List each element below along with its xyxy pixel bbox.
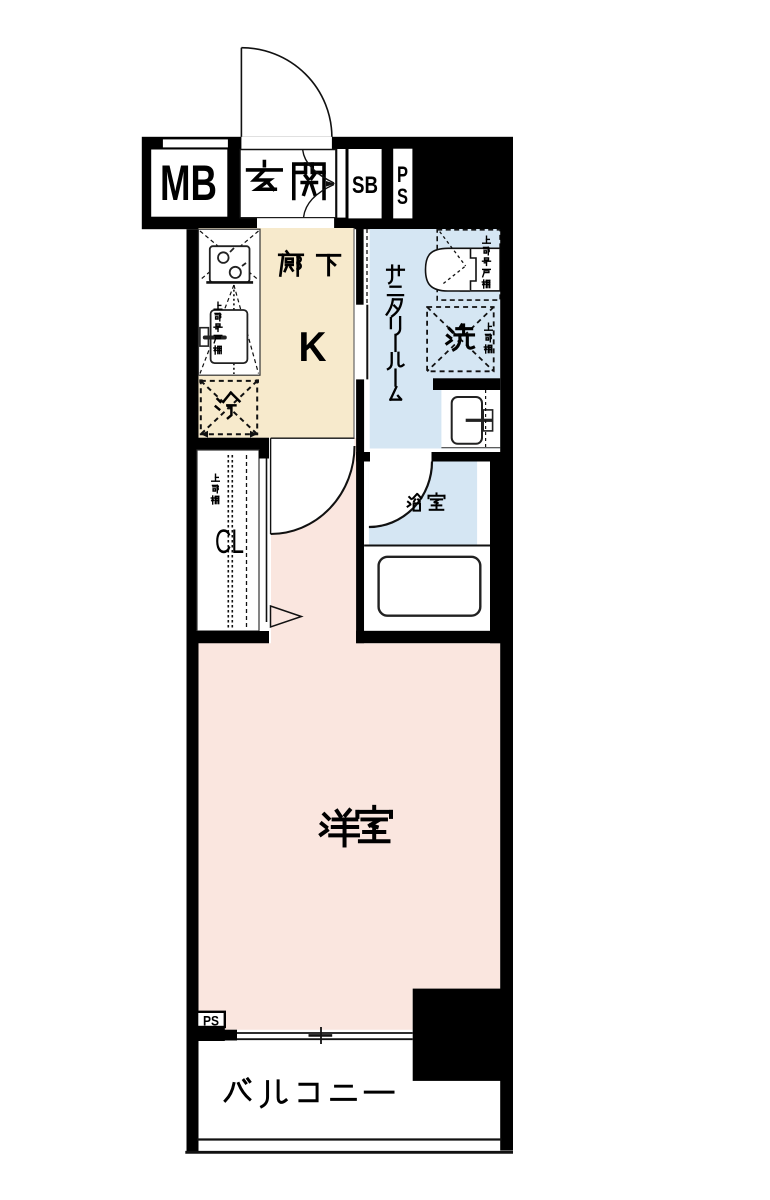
svg-text:SB: SB [352, 172, 378, 199]
svg-text:MB: MB [160, 155, 217, 211]
svg-text:PS: PS [203, 1012, 219, 1028]
svg-text:K: K [299, 323, 327, 370]
svg-text:S: S [397, 184, 408, 209]
svg-text:CL: CL [215, 523, 244, 561]
